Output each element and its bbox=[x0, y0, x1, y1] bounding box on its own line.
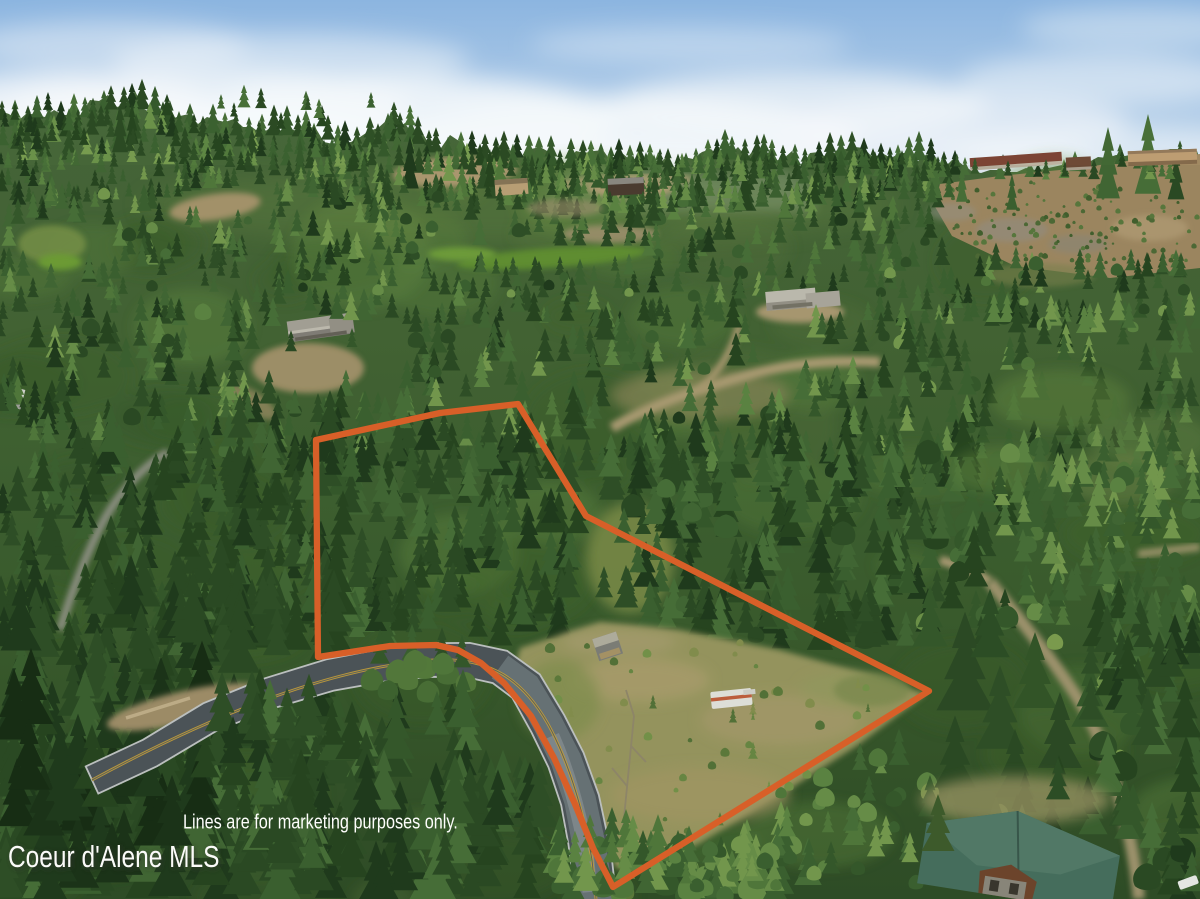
svg-text:Lines are for marketing purpos: Lines are for marketing purposes only. bbox=[183, 811, 458, 833]
svg-text:Coeur d'Alene MLS: Coeur d'Alene MLS bbox=[8, 839, 219, 873]
